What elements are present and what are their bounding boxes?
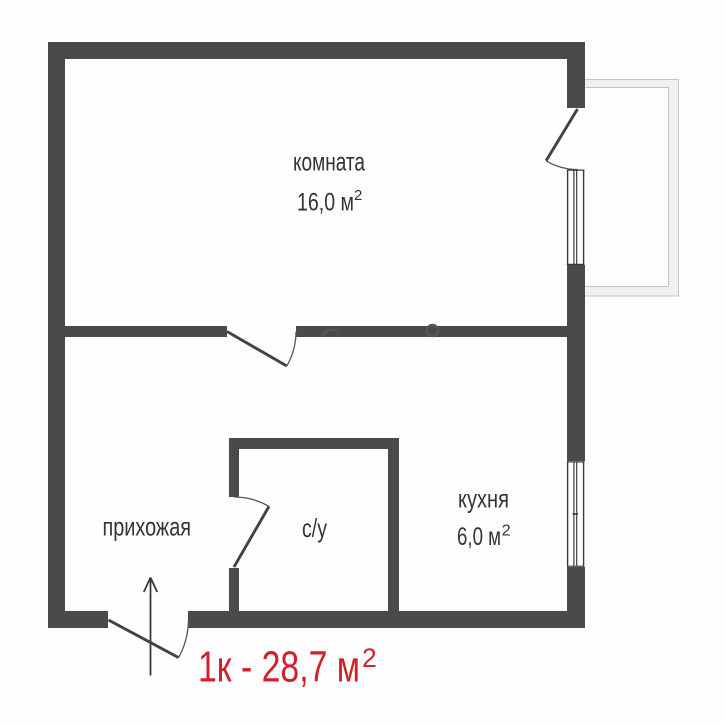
svg-text:2: 2 bbox=[354, 187, 362, 204]
svg-text:6,0 м: 6,0 м bbox=[457, 523, 501, 551]
svg-text:прихожая: прихожая bbox=[103, 512, 192, 542]
svg-text:с/у: с/у bbox=[302, 513, 327, 543]
svg-text:2: 2 bbox=[362, 643, 377, 673]
svg-text:комната: комната bbox=[293, 147, 365, 177]
svg-text:1к - 28,7 м: 1к - 28,7 м bbox=[198, 643, 360, 692]
svg-text:кухня: кухня bbox=[458, 484, 509, 514]
svg-text:2: 2 bbox=[502, 523, 511, 540]
svg-text:16,0 м: 16,0 м bbox=[297, 189, 354, 217]
